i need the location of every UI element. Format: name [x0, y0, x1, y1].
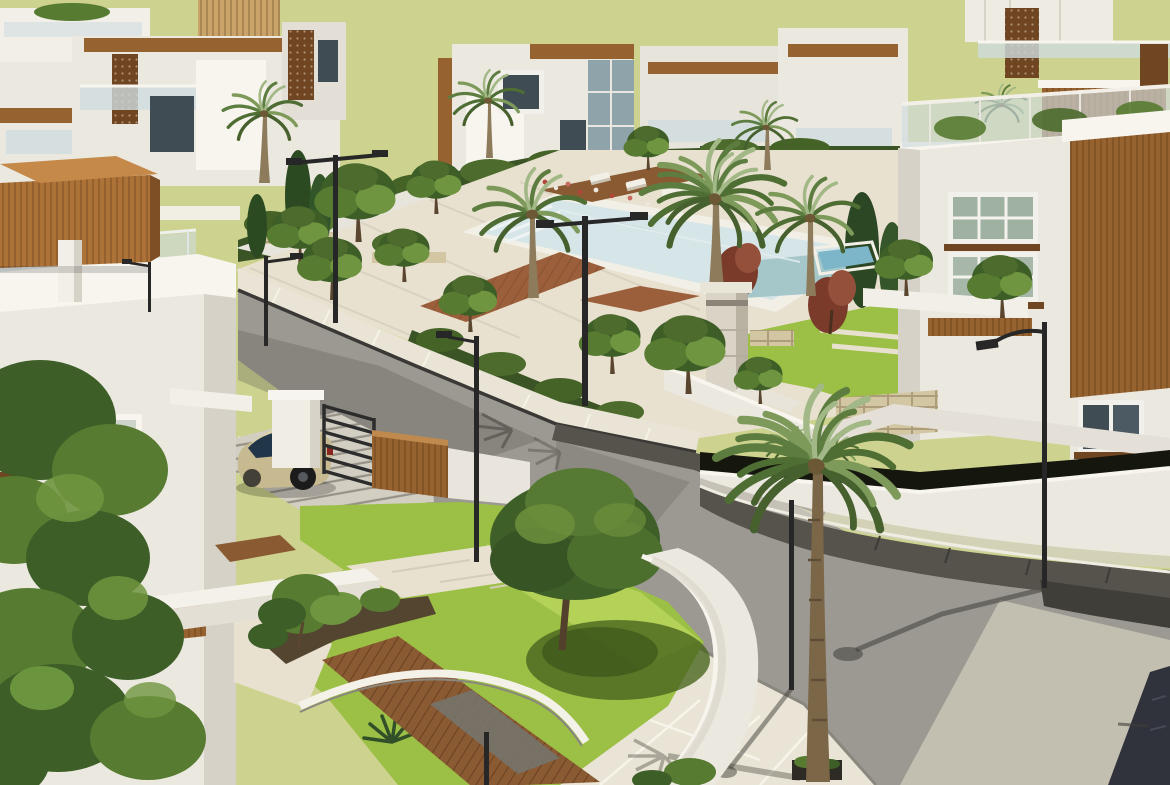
lamp-pole: [789, 500, 794, 690]
right-villa-window-band-1: [944, 192, 1040, 251]
community-render-image: [0, 0, 1170, 785]
lamp-pole: [484, 732, 489, 785]
rendered-scene: [0, 0, 1170, 785]
